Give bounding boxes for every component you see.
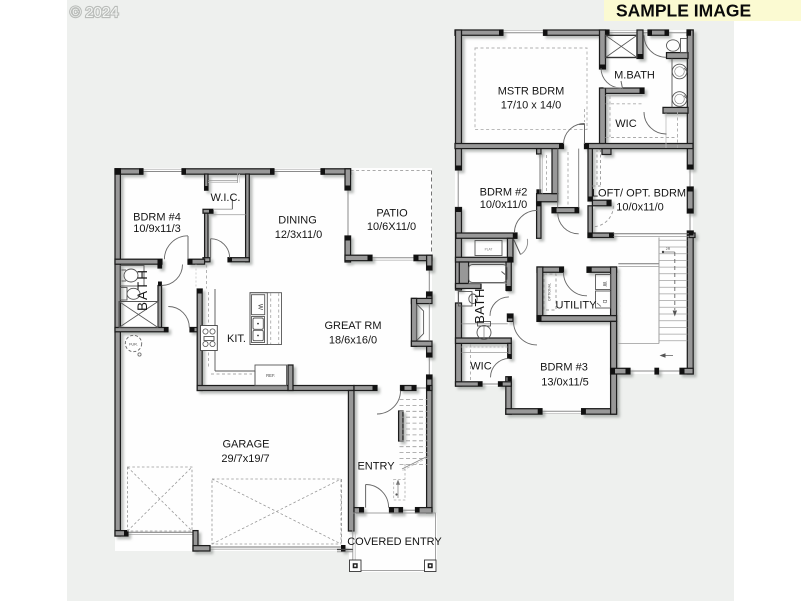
svg-text:W: W (601, 282, 607, 287)
svg-text:SAMPLE IMAGE: SAMPLE IMAGE (616, 1, 751, 21)
svg-text:UTILITY: UTILITY (556, 300, 598, 312)
svg-text:BDRM #3: BDRM #3 (540, 362, 588, 374)
svg-text:KIT.: KIT. (227, 333, 246, 345)
svg-text:29/7x19/7: 29/7x19/7 (221, 453, 269, 465)
svg-text:REF.: REF. (266, 373, 275, 378)
svg-text:WIC: WIC (470, 361, 491, 373)
svg-text:OPTIONAL: OPTIONAL (548, 283, 552, 301)
svg-text:D: D (601, 300, 607, 304)
svg-text:W.I.C.: W.I.C. (211, 192, 241, 204)
svg-text:© 2024: © 2024 (70, 4, 119, 21)
svg-text:18/6x16/0: 18/6x16/0 (329, 335, 377, 347)
svg-text:13/0x11/5: 13/0x11/5 (541, 377, 589, 389)
svg-text:COVERED ENTRY: COVERED ENTRY (347, 536, 442, 548)
svg-text:GARAGE: GARAGE (222, 439, 269, 451)
svg-text:W: W (257, 304, 264, 311)
svg-text:FUR.: FUR. (129, 343, 138, 347)
svg-text:LOFT/ OPT. BDRM: LOFT/ OPT. BDRM (592, 188, 686, 200)
svg-text:10/0x11/0: 10/0x11/0 (480, 199, 528, 211)
svg-text:ENTRY: ENTRY (357, 461, 395, 473)
svg-text:BDRM #2: BDRM #2 (480, 186, 528, 198)
svg-text:10/9x11/3: 10/9x11/3 (133, 223, 181, 235)
svg-text:DINING: DINING (278, 215, 317, 227)
svg-text:GREAT RM: GREAT RM (324, 320, 381, 332)
svg-text:BATH: BATH (135, 268, 150, 311)
svg-text:10/6X11/0: 10/6X11/0 (367, 221, 416, 233)
svg-text:WIC: WIC (615, 118, 636, 130)
svg-text:10/0x11/0: 10/0x11/0 (616, 202, 664, 214)
svg-text:BATH: BATH (472, 288, 487, 324)
svg-text:PATIO: PATIO (376, 208, 408, 220)
svg-text:17/10 x 14/0: 17/10 x 14/0 (501, 100, 562, 112)
svg-text:PLAT: PLAT (485, 248, 493, 252)
svg-text:2R: 2R (666, 247, 671, 251)
svg-text:12/3x11/0: 12/3x11/0 (275, 229, 323, 241)
svg-text:MSTR BDRM: MSTR BDRM (498, 86, 565, 98)
svg-text:M.BATH: M.BATH (614, 70, 655, 82)
svg-text:BDRM #4: BDRM #4 (133, 212, 181, 224)
